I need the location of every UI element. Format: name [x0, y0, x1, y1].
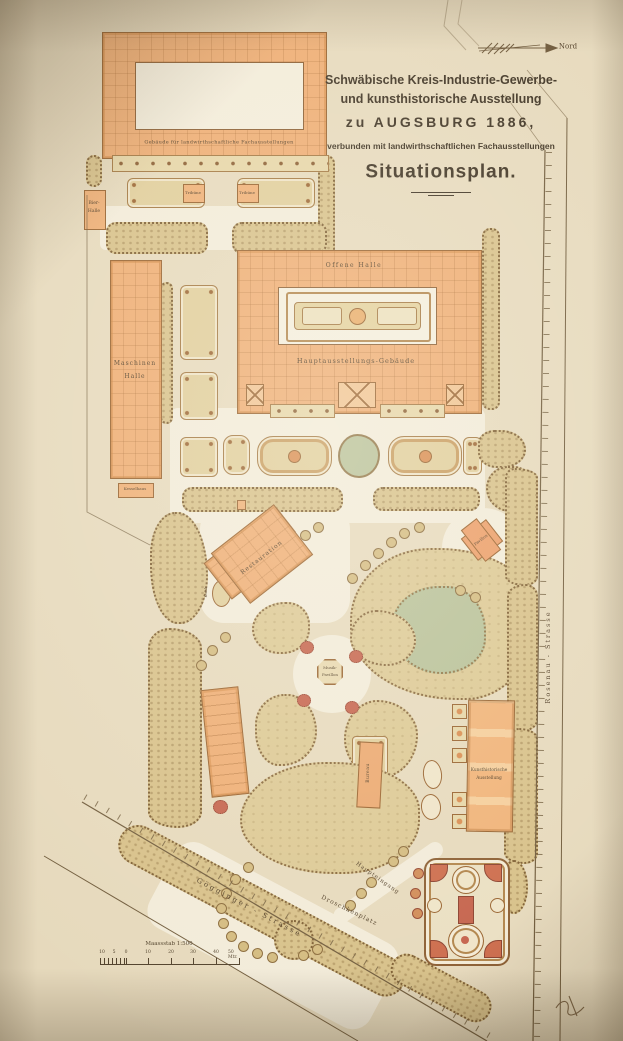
bush [455, 585, 466, 596]
bush [220, 632, 231, 643]
rose-garden-center-bed [458, 896, 474, 924]
scale-major-tick [216, 958, 217, 965]
scale-major-tick [171, 958, 172, 965]
musik-pavillon-label-1: Musik- [323, 666, 337, 670]
bush [360, 560, 371, 571]
scale-tick: 0 [125, 951, 128, 956]
alley-hedge-east [373, 487, 480, 511]
bush [414, 522, 425, 533]
bush [373, 548, 384, 559]
bush [300, 530, 311, 541]
rose-garden-ring-right [490, 898, 505, 913]
bierhalle-label-1: Bier- [88, 202, 99, 207]
garden-bed-1 [180, 285, 218, 360]
map-photo: Gebäude für landwirthschaftliche Fachaus… [0, 0, 623, 1041]
rose-garden-circle-top [452, 866, 480, 894]
kunsthistorische-label-1: Kunsthistorische [471, 769, 508, 773]
small-kiosk-box [237, 500, 246, 510]
kiosk-label: Kiosk [204, 586, 208, 597]
north-arrow-icon [478, 43, 557, 54]
scale-tick: 30 [190, 951, 196, 956]
building-stall-west [200, 686, 249, 797]
bush [252, 948, 263, 959]
map-title-line3: zu AUGSBURG 1886, [346, 115, 537, 129]
pavilion-chain-5 [452, 814, 467, 829]
map-title-line4: verbunden mit landwirthschaftlichen Fach… [327, 142, 555, 151]
rosenau-street-hatching [537, 152, 549, 1041]
kesselhaus-label: Kesselhaus [124, 487, 147, 491]
fachausstellungen-courtyard [135, 62, 304, 130]
bush [388, 856, 399, 867]
paper-crease-1 [444, 0, 466, 50]
pavilion-chain-3 [452, 748, 467, 763]
pergola-strip-right [380, 404, 445, 418]
scale-tick: 20 [168, 951, 174, 956]
pavilion-chain-4 [452, 792, 467, 807]
scale-hatch-zone [100, 958, 126, 965]
tribune-left-label: Tribüne [185, 191, 201, 195]
bush [313, 522, 324, 533]
building-kunsthistorische [466, 700, 515, 833]
bush [196, 660, 207, 671]
scale-bar: Maassstab 1:500 10 5 0 10 20 30 40 50 Mt… [96, 942, 246, 974]
bush [226, 931, 237, 942]
oval-bed-1 [422, 759, 444, 790]
flowerbed-south [297, 694, 311, 707]
hedge-tribune-left-end [86, 155, 102, 187]
scale-tick: 5 [113, 951, 116, 956]
north-label: Nord [559, 44, 577, 51]
alley-hedge-west [182, 487, 343, 512]
hedge-below-tribunes-left [106, 222, 208, 254]
building-maschinenhalle [110, 260, 162, 479]
bush [207, 645, 218, 656]
rose-garden-bottom-dot [461, 936, 469, 944]
maschinenhalle-label-1: Maschinen [114, 361, 156, 367]
signature-scribble [556, 996, 584, 1016]
bush [399, 528, 410, 539]
hedge-clump-northeast-1 [478, 430, 526, 468]
bush [230, 874, 241, 885]
rosenau-strasse-label: Rosenau - Strasse [545, 610, 552, 703]
garden-bed-2 [180, 372, 218, 420]
building-fachausstellungen-label: Gebäude für landwirthschaftliche Fachaus… [144, 141, 293, 146]
bush [470, 592, 481, 603]
bush [398, 846, 409, 857]
oval-bed-2 [420, 793, 443, 821]
flowerbed-stall [213, 800, 228, 814]
hedge-east-band-1 [505, 468, 538, 586]
bush [243, 862, 254, 873]
bush [267, 952, 278, 963]
courtyard-panel-left [302, 307, 342, 325]
pavilion-chain-2 [452, 726, 467, 741]
paper-crease-2 [458, 0, 479, 46]
flowerbed-east [349, 650, 363, 663]
entrance-pavilion-right [446, 384, 464, 406]
musik-pavillon-label-2: Pavillon [322, 673, 338, 677]
scale-major-tick [148, 958, 149, 965]
bush-red [412, 908, 423, 919]
entrance-pavilion-center [338, 382, 376, 408]
bush-red [413, 868, 424, 879]
bush [356, 888, 367, 899]
scale-caption: Maassstab 1:500 [145, 942, 192, 948]
courtyard-center-circle [349, 308, 366, 325]
parterre-west-center [288, 450, 301, 463]
maschinenhalle-label-2: Halle [124, 374, 145, 380]
title-flourish-2 [428, 195, 454, 198]
bush [347, 573, 358, 584]
offene-halle-label: Offene Halle [326, 263, 382, 269]
bush [298, 950, 309, 961]
bierhalle-label-2: Halle [88, 210, 100, 215]
map-title-line2: und kunsthistorische Ausstellung [341, 93, 542, 106]
hauptgebaeude-label: Hauptausstellungs-Gebäude [297, 358, 415, 365]
bush [216, 903, 227, 914]
garden-bed-4 [223, 435, 250, 475]
pavilion-chain-1 [452, 704, 467, 719]
map-title-line1: Schwäbische Kreis-Industrie-Gewerbe- [325, 74, 557, 87]
bureau-label: Bureau [367, 763, 372, 783]
colonnade-strip [112, 155, 329, 172]
hedge-west-band [148, 628, 202, 828]
courtyard-panel-right [377, 307, 417, 325]
rosenau-street-line-outer [560, 118, 567, 1041]
scale-major-tick [193, 958, 194, 965]
bush [312, 944, 323, 955]
parterre-east-center [419, 450, 432, 463]
kunsthistorische-label-2: Ausstellung [476, 777, 502, 781]
flowerbed-west [345, 701, 359, 714]
scale-tick: 10 [145, 951, 151, 956]
entrance-pavilion-left [246, 384, 264, 406]
garden-bed-3 [180, 437, 218, 477]
flowerbed-north [300, 641, 314, 654]
scale-major-tick [239, 958, 240, 965]
bush [386, 537, 397, 548]
map-title-line5: Situationsplan. [365, 163, 516, 182]
rose-garden-ring-left [427, 898, 442, 913]
scale-tick: 40 [213, 951, 219, 956]
pergola-strip-left [270, 404, 335, 418]
scale-tick: 10 [99, 951, 105, 956]
bush-red [410, 888, 421, 899]
hedge-main-building-east [482, 228, 500, 410]
tribune-right-label: Tribüne [239, 191, 255, 195]
bush [218, 918, 229, 929]
fountain-basin [338, 434, 380, 478]
scale-major-tick [126, 958, 127, 965]
